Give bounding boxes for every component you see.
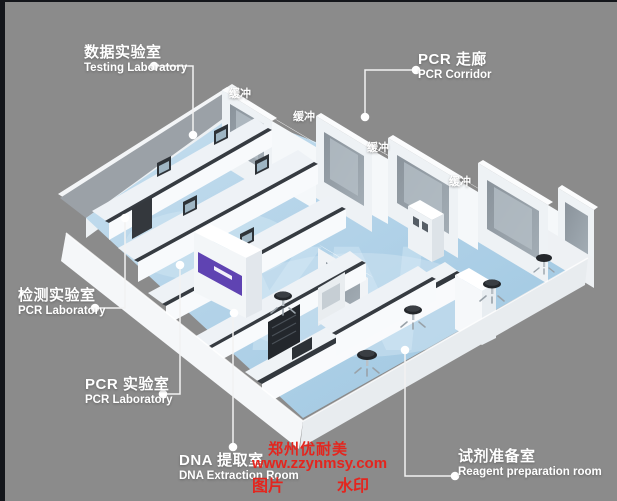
label-pcr-corridor-zh: PCR 走廊 <box>418 52 491 68</box>
label-reagent-preparation-room-en: Reagent preparation room <box>458 466 602 479</box>
label-pcr-laboratory-left: 检测实验室 PCR Laboratory <box>18 288 106 318</box>
label-pcr-laboratory-bottom: PCR 实验室 PCR Laboratory <box>85 377 173 407</box>
buffer-room-tag-3: 缓冲 <box>367 139 389 155</box>
label-pcr-laboratory-left-zh: 检测实验室 <box>18 288 106 304</box>
label-testing-laboratory-zh: 数据实验室 <box>84 45 187 61</box>
buffer-room-tag-1: 缓冲 <box>229 85 251 101</box>
buffer-room-tag-2: 缓冲 <box>293 108 315 124</box>
buffer-room-tag-4: 缓冲 <box>449 173 471 189</box>
top-frame-stripe <box>0 0 617 2</box>
label-pcr-corridor: PCR 走廊 PCR Corridor <box>418 52 491 82</box>
left-frame-stripe <box>0 0 5 501</box>
label-reagent-preparation-room: 试剂准备室 Reagent preparation room <box>458 449 602 479</box>
label-reagent-preparation-room-zh: 试剂准备室 <box>458 449 602 465</box>
watermark-tag-image: 图片 <box>252 472 284 496</box>
label-testing-laboratory-en: Testing Laboratory <box>84 62 187 75</box>
label-pcr-laboratory-bottom-en: PCR Laboratory <box>85 394 173 407</box>
label-testing-laboratory: 数据实验室 Testing Laboratory <box>84 45 187 75</box>
lab-rendering-image: YN <box>0 0 617 501</box>
label-pcr-laboratory-left-en: PCR Laboratory <box>18 305 106 318</box>
label-pcr-corridor-en: PCR Corridor <box>418 69 491 82</box>
lab-3d-model: YN <box>0 0 617 501</box>
callout-line-pcr-corridor <box>365 70 416 117</box>
label-pcr-laboratory-bottom-zh: PCR 实验室 <box>85 377 173 393</box>
watermark-url: www.zzynmsy.com <box>252 455 387 472</box>
watermark-tag-shuiyin: 水印 <box>337 472 369 496</box>
